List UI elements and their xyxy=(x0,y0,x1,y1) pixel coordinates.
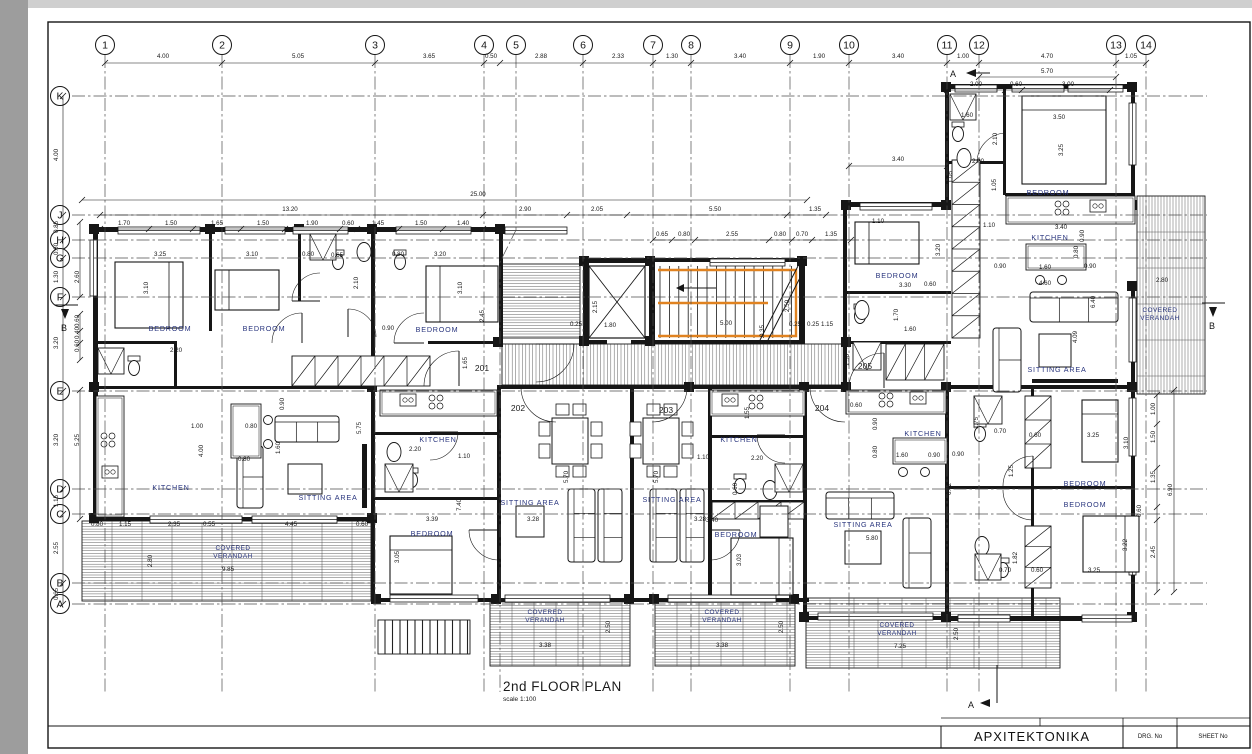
sofa xyxy=(826,492,894,519)
kitchen-counter xyxy=(380,390,497,416)
room-label: BEDROOM xyxy=(1064,479,1107,488)
section-label: B xyxy=(61,323,67,333)
dimension-text: 0.60 xyxy=(1029,432,1042,439)
stool xyxy=(264,416,273,425)
structural-column xyxy=(491,594,501,604)
verandah-label: VERANDAH xyxy=(213,553,253,560)
dimension-text: 0.80 xyxy=(678,231,691,238)
stove-burner xyxy=(749,395,755,401)
dining-chair xyxy=(630,422,641,436)
grid-bubble-col-label: 14 xyxy=(1140,40,1152,52)
dimension-text: 1.10 xyxy=(697,454,710,461)
dimension-text: 0.90 xyxy=(279,397,286,410)
stove-burner xyxy=(437,395,443,401)
dimension-text: 0.70 xyxy=(999,567,1012,574)
verandah-label: COVERED xyxy=(527,609,562,616)
structural-column xyxy=(1127,281,1137,291)
basin xyxy=(957,149,971,168)
door-swing xyxy=(536,344,574,382)
dimension-text: 5.25 xyxy=(74,433,81,446)
structural-column xyxy=(89,382,99,392)
wall xyxy=(499,227,503,347)
bed xyxy=(1022,96,1106,184)
dimension-text: 3.20 xyxy=(935,243,942,256)
kitchen-sink xyxy=(105,470,109,474)
dimension-text: 0.90 xyxy=(1084,263,1097,270)
dimension-text: 2.80 xyxy=(147,554,154,567)
room-label: SITTING AREA xyxy=(500,498,559,507)
stool xyxy=(1058,276,1067,285)
wall xyxy=(655,340,803,344)
dimension-text: 1.55 xyxy=(744,406,751,419)
structural-column xyxy=(579,256,589,266)
dimension-text: 1.00 xyxy=(191,423,204,430)
dimension-text: 3.28 xyxy=(694,516,707,523)
dimension-text: 4.60 xyxy=(1039,280,1052,287)
kitchen-counter xyxy=(231,404,261,458)
room-label: KITCHEN xyxy=(904,429,941,438)
dimension-text: 1.70 xyxy=(893,308,900,321)
wall xyxy=(708,385,712,600)
grid-bubble-col-label: 6 xyxy=(580,40,586,52)
basin xyxy=(357,243,371,262)
dimension-text: 0.60 xyxy=(342,220,355,227)
section-arrow-a-top xyxy=(966,69,976,77)
verandah-label: COVERED xyxy=(1142,307,1177,314)
kitchen-sink xyxy=(722,394,738,406)
dimension-text: 0.80 xyxy=(774,231,787,238)
stair-up-arrow-head xyxy=(676,284,684,292)
dimension-text: 1.50 xyxy=(165,220,178,227)
structural-column xyxy=(841,337,851,347)
dimension-text: 0.25 xyxy=(807,321,820,328)
verandah-label: VERANDAH xyxy=(877,630,917,637)
grid-bubble-col-label: 8 xyxy=(688,40,694,52)
tv-unit xyxy=(362,444,367,508)
dimension-text: 2.45 xyxy=(1150,545,1157,558)
structural-column xyxy=(799,612,809,622)
door-swing xyxy=(521,387,556,422)
stool xyxy=(264,440,273,449)
dimension-text: 1.00 xyxy=(957,53,970,60)
dimension-text: 3.20 xyxy=(53,336,60,349)
dimension-text: 1.50 xyxy=(844,353,851,366)
room-label: BEDROOM xyxy=(149,324,192,333)
stove-burner xyxy=(109,433,115,439)
dimension-text: 1.05 xyxy=(991,178,998,191)
titleblock-discipline: ΑΡΧΙΤΕΚΤΟΝΙΚΑ xyxy=(941,727,1123,747)
dimension-text: 3.10 xyxy=(1123,436,1130,449)
dimension-text: 2.50 xyxy=(778,620,785,633)
dimension-text: 1.60 xyxy=(275,441,282,454)
dimension-text: 2.50 xyxy=(784,299,791,312)
dimension-text: 1.90 xyxy=(306,220,319,227)
dimension-text: 6.42 xyxy=(946,482,953,495)
structural-column xyxy=(797,256,807,266)
dining-chair xyxy=(556,404,569,415)
dimension-text: 5.70 xyxy=(563,470,570,483)
stove-burner xyxy=(757,395,763,401)
stool xyxy=(921,468,930,477)
verandah-label: VERANDAH xyxy=(1140,315,1180,322)
dimension-text: 0.60 xyxy=(924,281,937,288)
titleblock-sheet-no-label: SHEET No xyxy=(1177,727,1249,747)
stove-burner xyxy=(1063,201,1069,207)
wall xyxy=(649,258,655,344)
balcony-railing xyxy=(378,620,470,654)
stove-burner xyxy=(757,403,763,409)
dining-chair xyxy=(630,444,641,458)
dimension-text: 2.55 xyxy=(726,231,739,238)
dimension-text: 3.10 xyxy=(143,281,150,294)
sofa xyxy=(598,489,622,562)
dimension-text: 3.40 xyxy=(706,517,719,524)
stove-burner xyxy=(1055,201,1061,207)
dimension-text: 2.00 xyxy=(970,81,983,88)
dimension-text: 5.00 xyxy=(720,320,733,327)
room-label: SITTING AREA xyxy=(1027,365,1086,374)
kitchen-sink xyxy=(111,470,115,474)
dimension-text: 1.65 xyxy=(211,220,224,227)
structural-column xyxy=(645,256,655,266)
dimension-text: 7.40 xyxy=(456,498,463,511)
stove-burner xyxy=(429,403,435,409)
dimension-text: 0.60 xyxy=(1031,567,1044,574)
basin xyxy=(387,443,401,462)
wall xyxy=(843,291,951,294)
dimension-text: 2.88 xyxy=(535,53,548,60)
verandah-label: COVERED xyxy=(879,622,914,629)
dimension-text: 3.40 xyxy=(892,156,905,163)
dimension-text: 1.10 xyxy=(872,218,885,225)
section-label: A xyxy=(950,69,956,79)
wall xyxy=(96,341,176,344)
grid-bubble-col-label: 9 xyxy=(787,40,793,52)
stove-burner xyxy=(1063,209,1069,215)
verandah-label: VERANDAH xyxy=(702,617,742,624)
dimension-text: 3.28 xyxy=(527,516,540,523)
structural-column xyxy=(493,337,503,347)
dimension-text: 0.80 xyxy=(91,521,104,528)
grid-bubble-col-label: 7 xyxy=(650,40,656,52)
dimension-text: 1.10 xyxy=(458,453,471,460)
room-label: BEDROOM xyxy=(243,324,286,333)
dimension-text: 3.65 xyxy=(423,53,436,60)
dimension-text: 3.20 xyxy=(53,433,60,446)
dimension-text: 3.00 xyxy=(1062,81,1075,88)
dimension-text: 0.90 xyxy=(872,417,879,430)
grid-bubble-col-label: 3 xyxy=(372,40,378,52)
stove-burner xyxy=(879,401,885,407)
room-label: KITCHEN xyxy=(1031,233,1068,242)
room-label: BEDROOM xyxy=(416,325,459,334)
dimension-text: 1.05 xyxy=(947,170,954,183)
dimension-text: 1.82 xyxy=(1012,551,1019,564)
dining-table xyxy=(643,418,679,464)
stove-burner xyxy=(101,433,107,439)
basin xyxy=(855,301,869,320)
structural-column xyxy=(367,513,377,523)
dimension-text: 1.60 xyxy=(896,452,909,459)
dimension-text: 13.20 xyxy=(282,206,298,213)
dimension-text: 1.45 xyxy=(372,220,385,227)
room-label: KITCHEN xyxy=(152,483,189,492)
dining-chair xyxy=(591,422,602,436)
dimension-text: 3.25 xyxy=(1088,567,1101,574)
verandah-label: COVERED xyxy=(215,545,250,552)
wall xyxy=(583,258,589,344)
dimension-text: 1.60 xyxy=(961,112,974,119)
grid-bubble-col-label: 13 xyxy=(1110,40,1122,52)
dimension-text: 1.15 xyxy=(53,494,60,507)
dimension-text: 2.45 xyxy=(479,309,486,322)
dimension-text: 1.60 xyxy=(904,326,917,333)
sofa xyxy=(1030,292,1118,322)
dimension-text: 0.80 xyxy=(1073,245,1080,258)
dimension-text: 5.75 xyxy=(356,421,363,434)
kitchen-sink xyxy=(1093,204,1097,208)
kitchen-sink xyxy=(400,394,416,406)
stove-burner xyxy=(101,441,107,447)
dimension-text: 5.80 xyxy=(866,535,879,542)
dimension-text: 3.03 xyxy=(736,553,743,566)
dimension-text: 2.20 xyxy=(751,455,764,462)
dimension-text: 0.90 xyxy=(382,325,395,332)
bed xyxy=(855,222,919,264)
dimension-text: 2.20 xyxy=(409,446,422,453)
stove-burner xyxy=(429,395,435,401)
structural-column xyxy=(89,224,99,234)
dimension-text: 6.40 xyxy=(1090,295,1097,308)
dimension-text: 1.35 xyxy=(1150,470,1157,483)
wall xyxy=(630,385,634,600)
dimension-text: 0.80 xyxy=(238,456,251,463)
room-label: SITTING AREA xyxy=(642,495,701,504)
dimension-text: 1.15 xyxy=(821,321,834,328)
unit-number: 202 xyxy=(511,403,525,413)
section-label: A xyxy=(968,700,974,710)
dimension-text: 6.90 xyxy=(1167,483,1174,496)
bed xyxy=(1083,516,1139,572)
structural-column xyxy=(1127,82,1137,92)
dimension-text: 0.60 xyxy=(850,402,863,409)
dimension-text: 0.80 xyxy=(872,445,879,458)
wall xyxy=(799,258,805,344)
wall xyxy=(428,341,502,344)
dimension-text: 1.05 xyxy=(1125,53,1138,60)
verandah-label: VERANDAH xyxy=(525,617,565,624)
dimension-text: 0.60 xyxy=(356,521,369,528)
structural-column xyxy=(645,336,655,346)
dining-chair xyxy=(591,444,602,458)
wall xyxy=(945,385,1137,389)
dimension-text: 0.70 xyxy=(796,231,809,238)
kitchen-sink xyxy=(1099,204,1103,208)
titleblock-drg-no-label: DRG. No xyxy=(1123,727,1177,747)
bed xyxy=(390,536,452,594)
unit-number: 203 xyxy=(659,405,673,415)
stove-burner xyxy=(887,393,893,399)
verandah-deck xyxy=(1137,196,1205,394)
dimension-text: 2.10 xyxy=(992,132,999,145)
dimension-text: 2.05 xyxy=(591,206,604,213)
basin xyxy=(975,537,989,556)
dimension-text: 3.25 xyxy=(154,251,167,258)
dimension-text: 3.10 xyxy=(457,281,464,294)
unit-number: 201 xyxy=(475,363,489,373)
stove-burner xyxy=(109,441,115,447)
kitchen-sink xyxy=(910,392,926,404)
dimension-text: 1.50 xyxy=(415,220,428,227)
structural-column xyxy=(649,594,659,604)
shower xyxy=(775,464,803,492)
structural-column xyxy=(371,594,381,604)
coffee-table xyxy=(288,464,322,494)
dimension-text: 1.75 xyxy=(973,416,980,429)
room-label: BEDROOM xyxy=(411,529,454,538)
verandah-label: COVERED xyxy=(704,609,739,616)
dimension-text: 1.30 xyxy=(53,270,60,283)
room-label: SITTING AREA xyxy=(833,520,892,529)
dimension-text: 2.10 xyxy=(353,276,360,289)
dimension-text: 5.70 xyxy=(1041,68,1054,75)
sofa xyxy=(568,489,595,562)
structural-column xyxy=(1127,382,1137,392)
dimension-text: 5.70 xyxy=(653,470,660,483)
wall xyxy=(93,386,375,389)
dining-chair xyxy=(539,422,550,436)
dimension-text: 2.33 xyxy=(612,53,625,60)
dimension-text: 3.38 xyxy=(539,642,552,649)
dimension-text: 0.65 xyxy=(331,252,344,259)
dimension-text: 0.25 xyxy=(789,321,802,328)
dimension-text: 5.05 xyxy=(292,53,305,60)
grid-bubble-col-label: 5 xyxy=(513,40,519,52)
dimension-text: 5.50 xyxy=(709,206,722,213)
section-arrow-a-bottom xyxy=(980,699,990,707)
tv-unit xyxy=(1032,379,1118,383)
room-label: BEDROOM xyxy=(1064,500,1107,509)
dimension-text: 0.60 xyxy=(74,314,81,327)
kitchen-sink xyxy=(919,396,923,400)
structural-column xyxy=(941,612,951,622)
dimension-text: 4.00 xyxy=(157,53,170,60)
dining-table xyxy=(552,418,588,464)
dimension-text: 25.00 xyxy=(470,191,486,198)
dimension-text: 0.90 xyxy=(1079,229,1086,242)
toilet xyxy=(953,127,964,142)
dimension-text: 0.50 xyxy=(485,53,498,60)
dimension-text: 3.05 xyxy=(394,550,401,563)
kitchen-sink xyxy=(913,396,917,400)
dimension-text: 1.80 xyxy=(604,322,617,329)
dimension-text: 3.40 xyxy=(734,53,747,60)
dimension-text: 3.38 xyxy=(716,642,729,649)
plan-scale: scale 1:100 xyxy=(503,696,536,703)
unit-number: 204 xyxy=(815,403,829,413)
plan-title: 2nd FLOOR PLAN xyxy=(503,679,622,694)
sofa xyxy=(275,416,339,442)
structural-column xyxy=(579,336,589,346)
kitchen-sink xyxy=(1090,200,1106,212)
verandah-deck xyxy=(82,521,371,601)
dimension-text: 3.10 xyxy=(246,251,259,258)
dining-chair xyxy=(573,404,586,415)
dining-chair xyxy=(539,444,550,458)
dimension-text: 9.85 xyxy=(222,566,235,573)
dimension-text: 1.40 xyxy=(457,220,470,227)
coffee-table xyxy=(1039,334,1071,367)
wall xyxy=(371,385,375,602)
wall xyxy=(497,385,501,602)
dimension-text: 2.00 xyxy=(972,158,985,165)
kitchen-sink xyxy=(725,398,729,402)
stove-burner xyxy=(437,403,443,409)
dimension-text: 1.25 xyxy=(1008,464,1015,477)
dimension-text: 4.00 xyxy=(53,148,60,161)
wall xyxy=(298,227,301,301)
dimension-text: 4.09 xyxy=(1072,330,1079,343)
stove-burner xyxy=(1055,209,1061,215)
grid-bubble-col-label: 10 xyxy=(843,40,855,52)
grid-bubble-col-label: 11 xyxy=(942,40,953,52)
dimension-text: 1.30 xyxy=(666,53,679,60)
dimension-text: 2.35 xyxy=(168,521,181,528)
dimension-text: 3.30 xyxy=(899,282,912,289)
dimension-text: 2.20 xyxy=(170,347,183,354)
dimension-text: 3.39 xyxy=(426,516,439,523)
dimension-text: 3.50 xyxy=(1053,114,1066,121)
bed xyxy=(215,270,279,310)
dining-chair xyxy=(573,466,586,477)
grid-bubble-col-label: 1 xyxy=(102,40,108,52)
dimension-text: 3.25 xyxy=(1058,143,1065,156)
dimension-text: 3.25 xyxy=(1087,432,1100,439)
dimension-text: 0.60 xyxy=(732,482,739,495)
section-label: B xyxy=(1209,321,1215,331)
dimension-text: 1.35 xyxy=(825,231,838,238)
dimension-text: 0.85 xyxy=(53,220,60,233)
dimension-text: 1.70 xyxy=(118,220,131,227)
dimension-text: 0.90 xyxy=(994,263,1007,270)
dimension-text: 3.40 xyxy=(892,53,905,60)
dimension-text: 0.55 xyxy=(203,521,216,528)
dimension-text: 1.50 xyxy=(257,220,270,227)
unit-number: 205 xyxy=(858,361,872,371)
dimension-text: 1.90 xyxy=(813,53,826,60)
drawing-viewport: 1234567891011121314KJHGFEDCBAAABB4.005.0… xyxy=(0,0,1252,754)
dimension-text: 4.70 xyxy=(1041,53,1054,60)
verandah-deck xyxy=(502,344,845,385)
dimension-text: 2.55 xyxy=(53,541,60,554)
dimension-text: 1.15 xyxy=(119,521,132,528)
dimension-text: 0.60 xyxy=(74,339,81,352)
grid-bubble-col-label: 4 xyxy=(481,40,487,52)
wall xyxy=(583,258,655,263)
stool xyxy=(899,468,908,477)
dimension-text: 1.50 xyxy=(1150,430,1157,443)
structural-column xyxy=(841,200,851,210)
kitchen-sink xyxy=(403,398,407,402)
dimension-text: 0.65 xyxy=(656,231,669,238)
dimension-text: 3.22 xyxy=(1122,538,1129,551)
kitchen-sink xyxy=(102,466,118,478)
dimension-text: 0.60 xyxy=(1136,504,1143,517)
dimension-text: 1.00 xyxy=(1150,402,1157,415)
room-label: BEDROOM xyxy=(715,530,758,539)
dimension-text: 1.65 xyxy=(462,356,469,369)
toilet xyxy=(129,361,140,376)
